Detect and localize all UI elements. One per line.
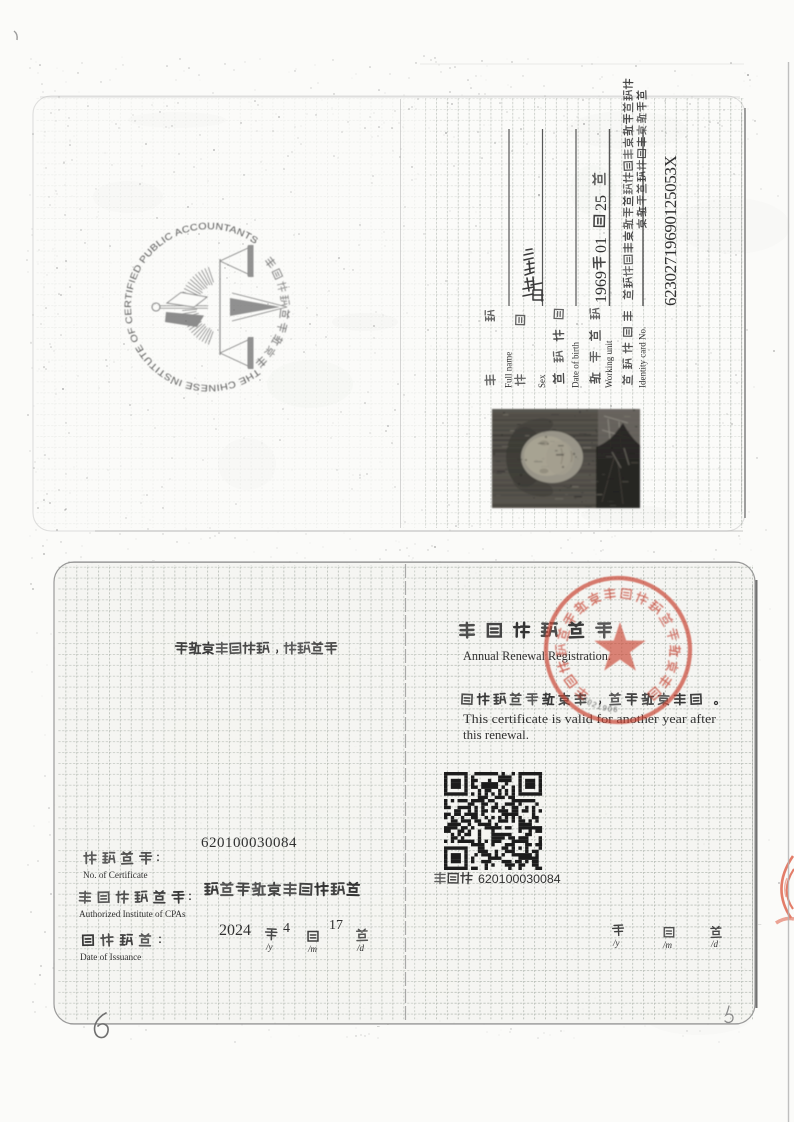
svg-text:Date of Issuance: Date of Issuance <box>80 952 141 962</box>
svg-text:/d: /d <box>710 939 719 949</box>
svg-text:25: 25 <box>593 195 610 211</box>
svg-text:1969: 1969 <box>593 271 610 303</box>
svg-text:/m: /m <box>662 940 673 950</box>
svg-text:/m: /m <box>307 944 318 954</box>
svg-text:01: 01 <box>593 237 610 253</box>
svg-text:Sex: Sex <box>537 374 547 388</box>
svg-text:Full name: Full name <box>504 352 514 388</box>
svg-text:this renewal.: this renewal. <box>463 728 529 742</box>
svg-text:620100030084: 620100030084 <box>478 872 561 886</box>
svg-text:Identity card No.: Identity card No. <box>638 327 648 388</box>
svg-text:17: 17 <box>329 918 343 933</box>
svg-text:Date of birth: Date of birth <box>571 342 581 388</box>
svg-text:2024: 2024 <box>219 922 251 939</box>
svg-text:6: 6 <box>613 705 618 714</box>
svg-text:/y: /y <box>265 942 273 952</box>
svg-text:/y: /y <box>612 938 620 948</box>
svg-text:/d: /d <box>356 943 365 953</box>
svg-text:Annual Renewal Registration.: Annual Renewal Registration. <box>463 649 611 663</box>
svg-text:620100030084: 620100030084 <box>201 835 297 851</box>
svg-text:62302719690125053X: 62302719690125053X <box>661 155 680 306</box>
svg-text:No. of Certificate: No. of Certificate <box>83 870 148 880</box>
svg-text:Authorized Institute of CPAs: Authorized Institute of CPAs <box>79 909 186 919</box>
svg-text:4: 4 <box>283 921 290 936</box>
svg-text:Working unit: Working unit <box>604 340 614 388</box>
